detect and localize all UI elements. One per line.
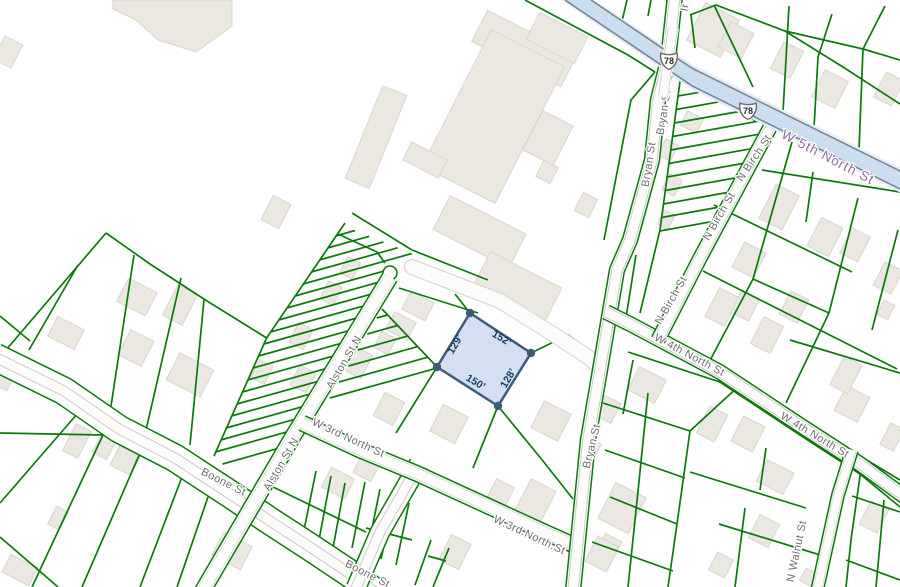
svg-text:78: 78 (743, 106, 753, 116)
svg-text:78: 78 (664, 56, 674, 66)
